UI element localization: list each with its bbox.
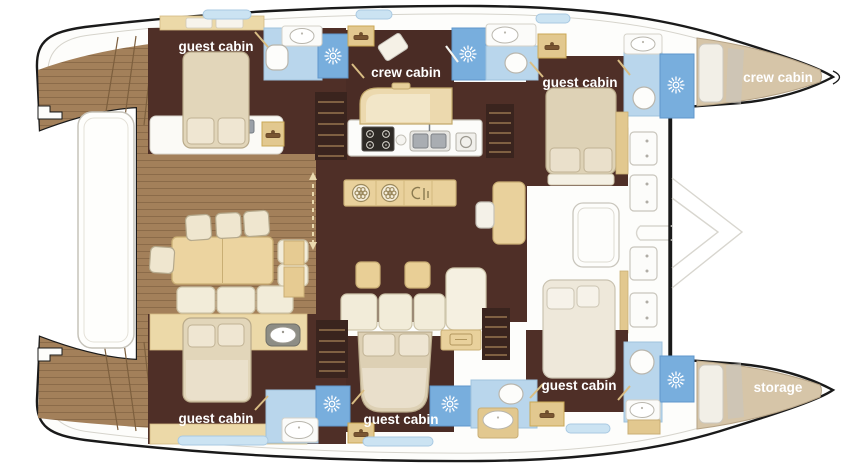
room-label-crew-cabin-mid: crew cabin (371, 65, 441, 80)
appliance-drum-icon (353, 185, 370, 202)
floorplan-canvas: guest cabin crew cabin guest cabin crew … (0, 0, 850, 467)
appliance-icon (456, 133, 476, 151)
toilet-icon (499, 384, 523, 404)
bed-foot-bench (548, 174, 614, 185)
stove-icon (362, 127, 394, 151)
appliance-drum-icon (382, 185, 399, 202)
pillow (547, 288, 574, 309)
window-pill (566, 424, 610, 433)
shade-line (726, 363, 744, 419)
stairs-fwd-port (486, 104, 514, 158)
sink-icon (492, 27, 518, 43)
catamaran-floorplan: guest cabin crew cabin guest cabin crew … (0, 0, 850, 467)
pillow (218, 118, 245, 144)
pillow (187, 118, 214, 144)
bathroom-crew (446, 28, 486, 80)
bed-mid-stbd (358, 332, 432, 412)
hatch-icon (630, 132, 657, 165)
stairs-fwd-stbd (482, 308, 510, 360)
sink-icon (270, 327, 296, 343)
toilet-icon (266, 45, 288, 70)
galley-island (344, 180, 456, 206)
pillow (188, 325, 215, 347)
pillow (577, 286, 599, 307)
shower-stall (660, 54, 694, 118)
pillow (699, 365, 723, 423)
bed-fwd-port (546, 88, 628, 185)
window-pill (363, 437, 433, 446)
room-label-crew-cabin-bow: crew cabin (743, 70, 813, 85)
window-pill (178, 436, 268, 445)
shower-stall (452, 28, 486, 80)
wardrobe (262, 122, 284, 146)
bed-aft-port (183, 52, 249, 148)
sink-icon (483, 411, 513, 429)
window-pill (203, 10, 251, 19)
window-pill (536, 14, 570, 23)
foredeck-table (573, 203, 619, 267)
bed-fwd-stbd (543, 280, 615, 378)
stool (405, 262, 430, 288)
galley (348, 120, 482, 156)
stairs-aft-stbd (316, 320, 348, 378)
pillow (363, 334, 395, 356)
nav-desk (493, 182, 525, 244)
wardrobe (530, 402, 564, 426)
sink-icon (630, 403, 654, 418)
hatch-icon (630, 175, 657, 211)
nav-seat (476, 202, 494, 228)
pillow (699, 44, 723, 102)
vanity-sink-aft-stbd (266, 324, 300, 346)
sink-icon (285, 422, 313, 439)
hull-wall-strip (620, 271, 628, 333)
bathroom-fwd-port-a (486, 24, 538, 80)
window-pill (356, 10, 392, 19)
toilet-icon (505, 53, 527, 73)
sink-icon (631, 37, 655, 51)
wardrobe (348, 26, 374, 46)
room-label-guest-cabin-fwd-port: guest cabin (542, 75, 617, 90)
pillow (584, 148, 612, 172)
room-label-guest-cabin-mid-stbd: guest cabin (363, 412, 438, 427)
cockpit-cabinet (284, 241, 304, 265)
pillow (218, 324, 244, 346)
pillow (550, 148, 580, 172)
room-label-guest-cabin-aft-stbd: guest cabin (178, 411, 253, 426)
round-basin-icon (396, 135, 406, 145)
bathroom-aft-port (264, 26, 348, 80)
bath-cabinet (628, 420, 660, 434)
room-label-guest-cabin-aft-port: guest cabin (178, 39, 253, 54)
pillow (399, 334, 429, 356)
bed-aft-stbd (183, 318, 251, 402)
shower-stall (660, 356, 694, 402)
stool (356, 262, 380, 288)
sink-icon (290, 29, 314, 44)
toilet-icon (630, 350, 654, 374)
shade-line (726, 48, 744, 104)
sofa-side-cabinet (441, 330, 481, 350)
hatch-icon (630, 247, 657, 280)
davit-platform (78, 112, 134, 348)
room-label-guest-cabin-fwd-stbd: guest cabin (541, 378, 616, 393)
hatch-icon (630, 293, 657, 327)
stairs-aft-port (315, 92, 347, 160)
cockpit-cabinet (284, 267, 304, 297)
room-label-storage-bow: storage (754, 380, 803, 395)
wall-strip (616, 112, 628, 174)
wardrobe (538, 34, 566, 58)
toilet-icon (633, 87, 655, 109)
